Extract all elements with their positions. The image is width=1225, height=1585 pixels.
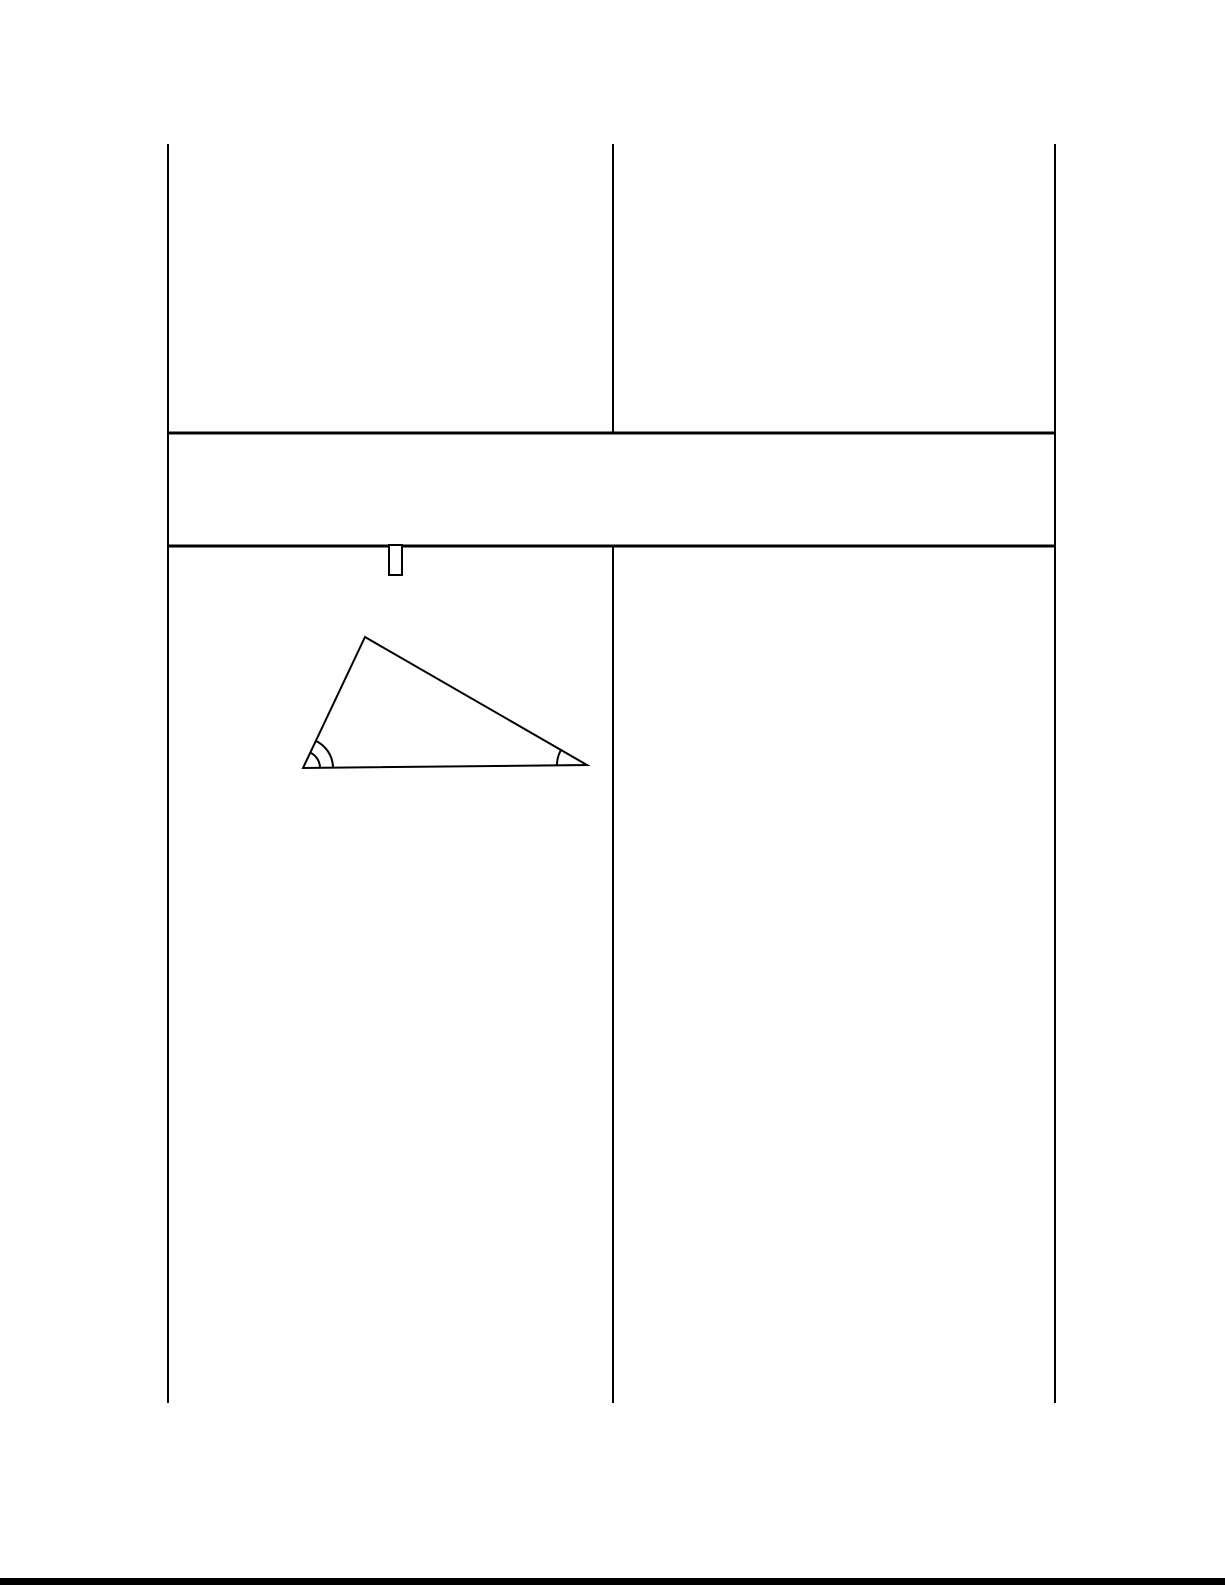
angle-arc-left-outer: [316, 741, 333, 768]
worksheet-graphics: [0, 0, 1225, 1585]
table-grid: [168, 144, 1055, 1403]
page-bottom-bar: [0, 1578, 1225, 1585]
document-page: [0, 0, 1225, 1585]
angle-arc-left-inner: [310, 753, 320, 768]
triangle-shape: [303, 637, 587, 768]
missing-glyph-box: [389, 545, 402, 575]
triangle-figure: [303, 637, 587, 768]
angle-arc-right: [557, 750, 561, 765]
